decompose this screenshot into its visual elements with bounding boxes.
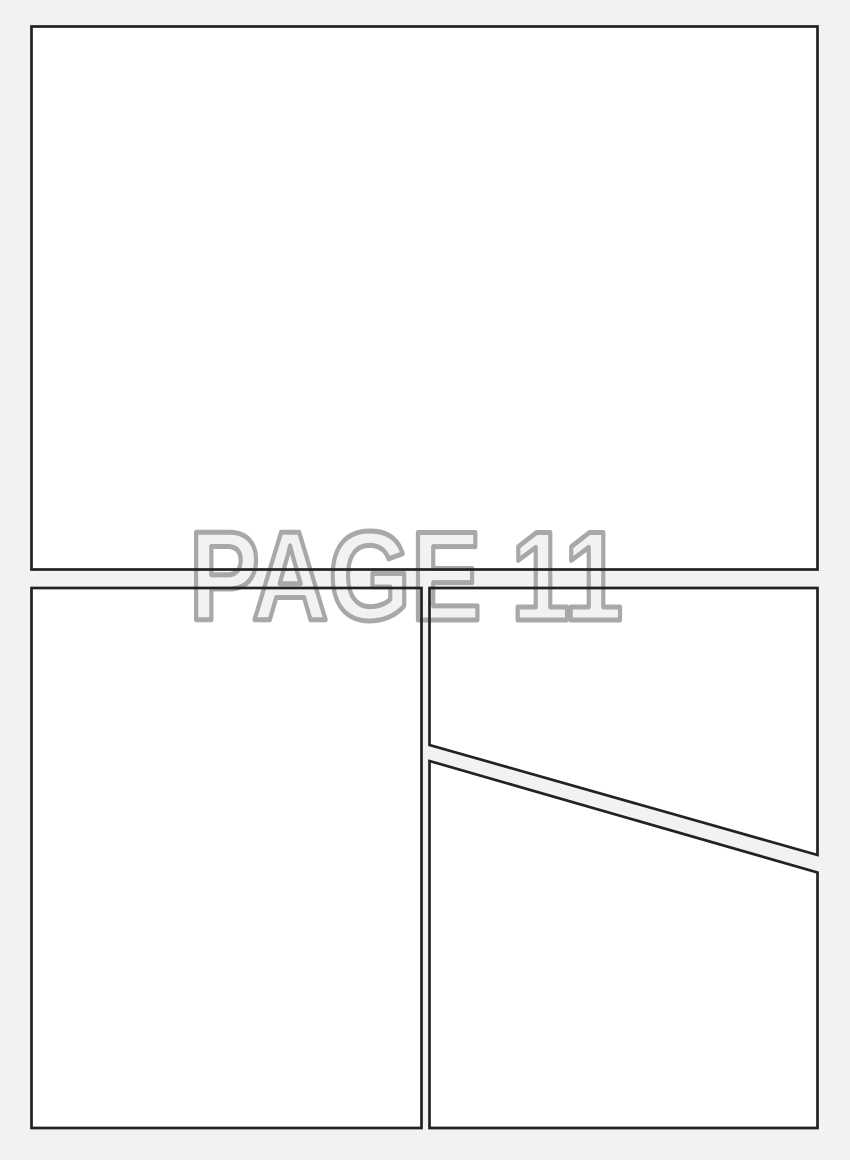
bottom-left-panel [32, 588, 422, 1128]
comic-page-template: PAGE 11 [0, 0, 850, 1160]
comic-page-canvas: PAGE 11 [0, 0, 850, 1160]
top-panel [32, 27, 818, 570]
page-number-label: PAGE 11 [189, 505, 623, 647]
